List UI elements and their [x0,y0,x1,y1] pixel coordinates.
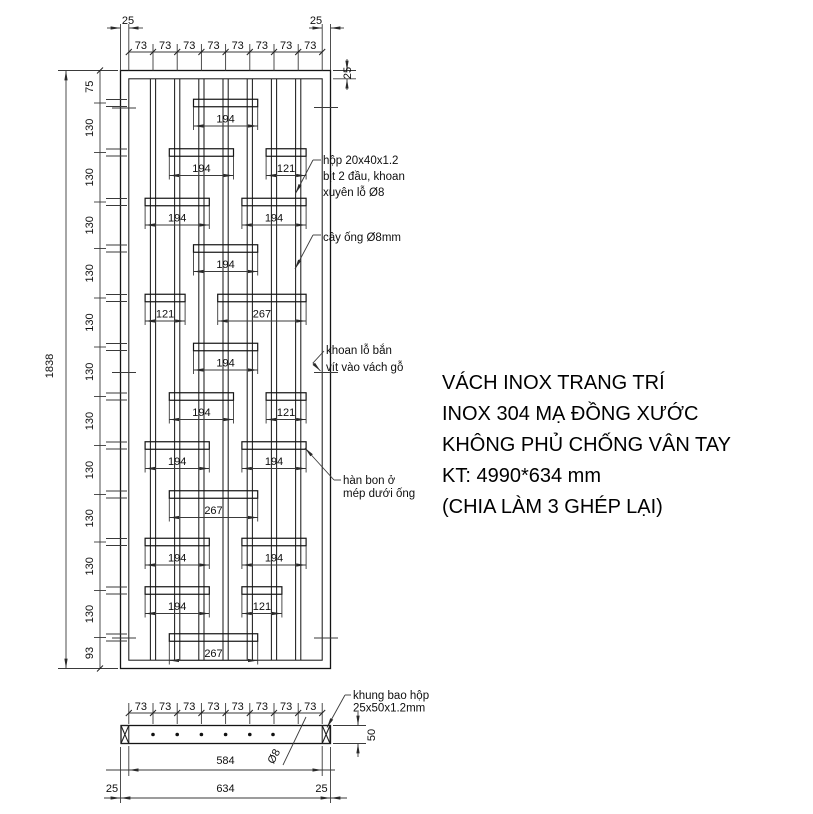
dim-label: 73 [207,701,219,713]
annotation-line: xuyên lỗ Ø8 [323,186,384,199]
dim-label: 73 [232,40,244,52]
dim-label: 73 [135,40,147,52]
title-line: KT: 4990*634 mm [442,465,601,487]
dim-label: 194 [192,407,210,419]
dim-label: 194 [168,456,186,468]
dim-label: 73 [183,40,195,52]
dim-label: 194 [168,601,186,613]
dim-label: 194 [168,213,186,225]
section-end-box-left [121,726,129,744]
annotation-line: bịt 2 đầu, khoan [323,171,405,183]
dim-label: 73 [304,701,316,713]
dim-label: 73 [183,701,195,713]
rod-holes [151,733,275,737]
dim-label: 121 [156,309,174,321]
dim-label: 73 [232,701,244,713]
dim-label: 121 [253,601,271,613]
title-block: VÁCH INOX TRANG TRÍ INOX 304 MẠ ĐỒNG XƯỚ… [442,371,731,518]
dim-label: 130 [84,509,96,527]
dim-label: 130 [84,119,96,137]
dim-label-1838: 1838 [44,354,56,378]
dim-label: 267 [253,309,271,321]
dim-label: 130 [84,412,96,430]
cross-tube-dimensions: 194 194 121 194 194 194 121 267 194 194 … [145,107,306,665]
screw-hole-marks [112,108,338,639]
annotation-line: mép dưới ống [343,488,415,500]
dim-label: 194 [192,163,210,175]
dim-label-50: 50 [366,729,378,741]
dim-label-frame-25: 25 [342,67,354,79]
title-line: INOX 304 MẠ ĐỒNG XƯỚC [442,401,699,425]
dim-label: 194 [265,553,283,565]
dim-label-25-right: 25 [315,783,327,795]
dim-label: 130 [84,461,96,479]
dim-label-584: 584 [216,755,234,767]
section-73-chain [126,703,325,724]
leader-lines [295,160,351,728]
annotation-line: vít vào vách gỗ [326,361,403,374]
dim-label: 267 [204,648,222,660]
section-view: 73 73 73 73 73 73 73 73 Ø8 584 [104,701,378,803]
annotation-line: hộp 20x40x1.2 [323,155,398,167]
dim-label: 121 [277,163,295,175]
annotation-hop-tube: hộp 20x40x1.2 bịt 2 đầu, khoan xuyên lỗ … [323,155,405,199]
dim-label: 73 [159,701,171,713]
dim-label: 194 [216,259,234,271]
annotation-line: khung bao hộp [353,690,429,702]
title-line: VÁCH INOX TRANG TRÍ [442,371,665,394]
dim-label: 130 [84,264,96,282]
dim-label-rod-dia: Ø8 [266,747,283,766]
dim-label: 130 [84,168,96,186]
dim-label: 73 [304,40,316,52]
annotation-weld: hàn bon ở mép dưới ống [343,475,415,500]
section-end-box-right [322,726,330,744]
dim-label: 73 [159,40,171,52]
dim-label: 73 [256,40,268,52]
annotation-line: 25x50x1.2mm [353,703,425,715]
dim-label: 73 [207,40,219,52]
dim-label: 73 [135,701,147,713]
dim-label: 73 [280,40,292,52]
dim-label: 130 [84,605,96,623]
dim-label: 130 [84,216,96,234]
dim-label: 194 [265,456,283,468]
dim-label-25-left: 25 [106,783,118,795]
dim-label: 73 [256,701,268,713]
front-view: 194 194 121 194 194 194 121 267 194 194 … [44,15,356,672]
panel-outer-frame [121,71,331,669]
cad-drawing-page: 194 194 121 194 194 194 121 267 194 194 … [0,0,813,814]
section-height-dim [333,712,366,757]
rod-dia-leader [283,717,306,765]
dim-label: 121 [277,407,295,419]
annotations: hộp 20x40x1.2 bịt 2 đầu, khoan xuyên lỗ … [295,155,429,728]
annotation-frame-box: khung bao hộp 25x50x1.2mm [353,690,429,715]
dim-label-25-left: 25 [122,15,134,27]
annotation-screw-hole: khoan lỗ bắn vít vào vách gỗ [326,344,403,374]
dim-label: 130 [84,557,96,575]
dim-label-634: 634 [216,783,234,795]
top-73-chain [126,44,325,71]
dim-label: 130 [84,363,96,381]
title-line: (CHIA LÀM 3 GHÉP LẠI) [442,495,663,518]
left-chain-labels: 75 130 130 130 130 130 130 130 130 130 1… [84,81,96,659]
dim-label: 93 [84,647,96,659]
dim-label-25-right: 25 [310,15,322,27]
annotation-line: khoan lỗ bắn [326,344,392,357]
technical-drawing: 194 194 121 194 194 194 121 267 194 194 … [0,0,813,814]
annotation-rod: cây ống Ø8mm [323,232,401,244]
dim-label: 194 [216,358,234,370]
dim-label: 267 [204,505,222,517]
dim-label: 130 [84,313,96,331]
annotation-line: hàn bon ở [343,475,396,487]
title-line: KHÔNG PHỦ CHỐNG VÂN TAY [442,432,731,456]
dim-label: 194 [168,553,186,565]
left-dim-chain [94,68,127,672]
dim-label: 194 [265,213,283,225]
dim-label: 194 [216,114,234,126]
dim-label: 75 [84,81,96,93]
dim-label: 73 [280,701,292,713]
